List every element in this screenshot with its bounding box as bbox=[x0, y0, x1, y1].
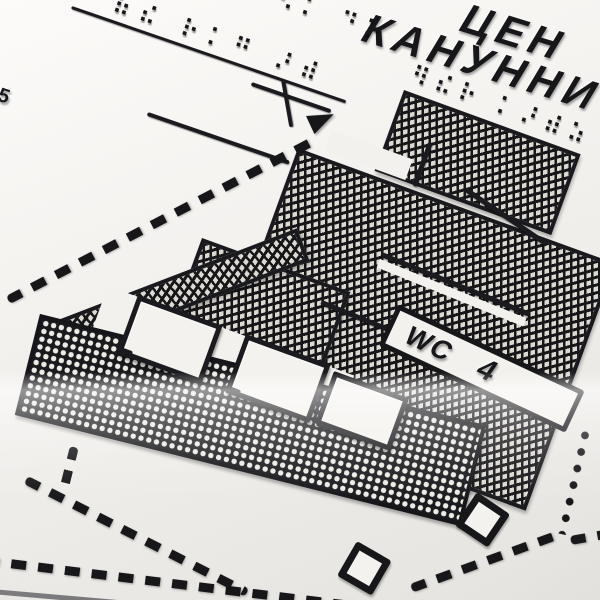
plate-edge bbox=[0, 589, 141, 600]
tactile-braille-floor-plan-photo: WC 4 ЦЕН КАНУННИ ⠪⠅ ⠙⠕ ⠷⠮ ⠗⠅⠛ ⠜⠾ ⠻⠮⠗ ⠅⠜⠾… bbox=[0, 0, 600, 600]
tactile-route-dotted bbox=[557, 426, 591, 535]
room-number-label: 5 bbox=[0, 84, 13, 109]
braille-row: ⠪⠅ ⠙⠕ bbox=[273, 0, 392, 49]
tactile-route-dashed bbox=[570, 528, 600, 545]
tactile-route-dashed bbox=[59, 446, 79, 493]
wall-line bbox=[147, 112, 290, 164]
wc-room-number: 4 bbox=[469, 353, 504, 388]
wall-line bbox=[281, 79, 293, 127]
diamond-marker-icon bbox=[337, 541, 392, 596]
